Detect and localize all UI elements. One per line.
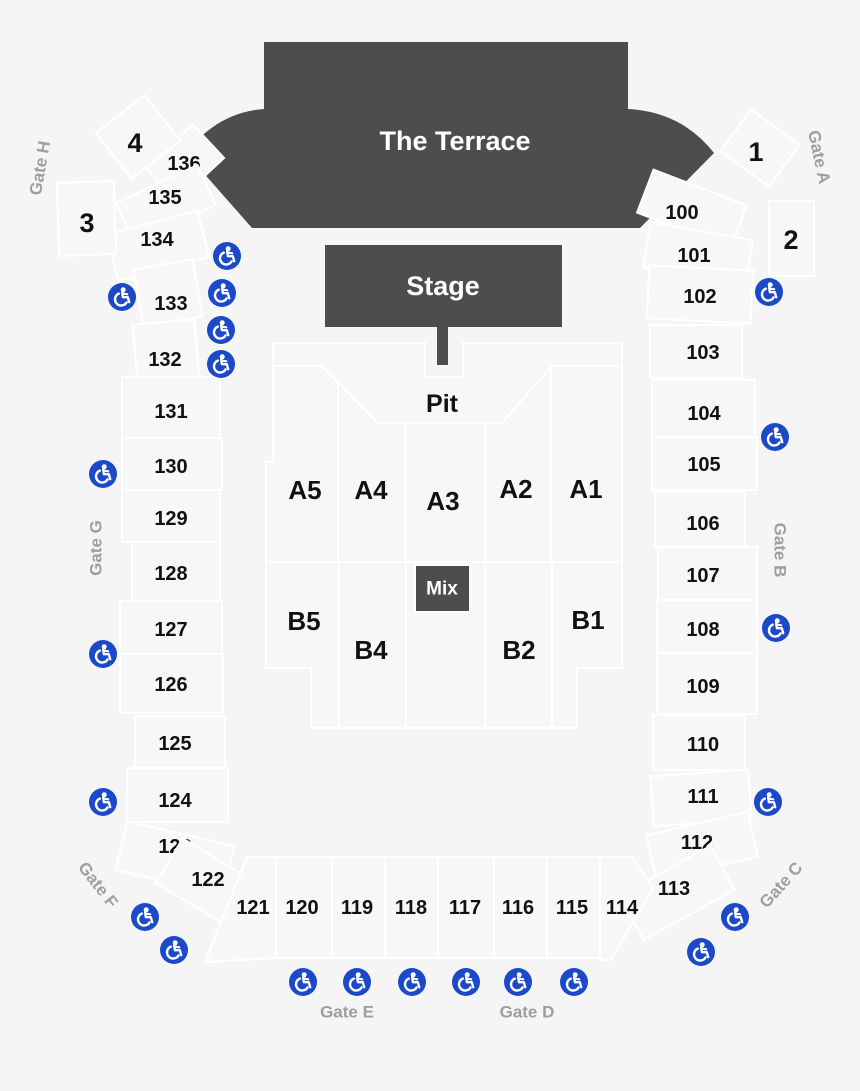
seating-map-canvas: The Terrace Stage Pit A5 A4 A3 A2 A1 B5 … [0, 0, 860, 1091]
section-102[interactable]: 102 [647, 265, 754, 323]
wheelchair-icon[interactable] [108, 283, 136, 311]
section-116-label: 116 [502, 897, 534, 919]
section-132[interactable]: 132 [133, 319, 200, 381]
section-125-label: 125 [158, 733, 191, 755]
section-b2-label[interactable]: B2 [502, 635, 535, 665]
section-a4-label[interactable]: A4 [354, 475, 388, 505]
section-117-label: 117 [449, 897, 481, 919]
section-110-label: 110 [687, 734, 719, 756]
section-118[interactable]: 118 [385, 857, 438, 958]
wheelchair-icon[interactable] [289, 968, 317, 996]
wheelchair-icon[interactable] [398, 968, 426, 996]
section-134-label: 134 [140, 229, 174, 251]
section-103-label: 103 [686, 342, 719, 364]
section-126[interactable]: 126 [120, 654, 223, 713]
wheelchair-icon[interactable] [755, 278, 783, 306]
section-115-label: 115 [556, 897, 588, 919]
section-110[interactable]: 110 [653, 715, 745, 770]
section-114-label: 114 [606, 897, 639, 919]
section-box-3-label: 3 [79, 208, 94, 238]
section-box-2-label: 2 [783, 225, 798, 255]
mix-booth-label: Mix [426, 579, 458, 600]
wheelchair-icon[interactable] [89, 640, 117, 668]
gate-g-label: Gate G [87, 520, 106, 576]
section-111-label: 111 [687, 786, 718, 808]
mix-booth: Mix [415, 565, 470, 612]
section-102-label: 102 [683, 286, 716, 308]
floor-area: Pit A5 A4 A3 A2 A1 B5 B4 B2 B1 [266, 343, 622, 728]
section-119-label: 119 [341, 897, 373, 919]
section-119[interactable]: 119 [332, 857, 385, 958]
stage-runway-shape [437, 327, 448, 365]
section-117[interactable]: 117 [438, 857, 494, 958]
section-104[interactable]: 104 [652, 380, 755, 437]
section-box-3[interactable]: 3 [57, 181, 117, 256]
section-105-label: 105 [687, 454, 720, 476]
wheelchair-icon[interactable] [131, 903, 159, 931]
section-128-label: 128 [154, 563, 187, 585]
section-101-label: 101 [677, 245, 710, 267]
section-a1-label[interactable]: A1 [569, 474, 602, 504]
wheelchair-icon[interactable] [207, 350, 235, 378]
wheelchair-icon[interactable] [754, 788, 782, 816]
wheelchair-icon[interactable] [343, 968, 371, 996]
wheelchair-icon[interactable] [213, 242, 241, 270]
wheelchair-icon[interactable] [721, 903, 749, 931]
section-b5-label[interactable]: B5 [287, 606, 320, 636]
section-pit-label[interactable]: Pit [426, 390, 459, 418]
wheelchair-icon[interactable] [687, 938, 715, 966]
section-107-label: 107 [686, 565, 719, 587]
section-115[interactable]: 115 [547, 857, 600, 958]
section-a5-label[interactable]: A5 [288, 475, 321, 505]
section-127-label: 127 [154, 619, 187, 641]
wheelchair-icon[interactable] [89, 788, 117, 816]
wheelchair-icon[interactable] [560, 968, 588, 996]
section-133-label: 133 [154, 293, 187, 315]
section-the-terrace-label: The Terrace [379, 126, 530, 156]
section-box-1-label: 1 [748, 137, 763, 167]
section-129[interactable]: 129 [122, 490, 220, 542]
section-107[interactable]: 107 [658, 547, 757, 600]
section-131[interactable]: 131 [122, 377, 220, 438]
section-b1-label[interactable]: B1 [571, 605, 604, 635]
seating-map: The Terrace Stage Pit A5 A4 A3 A2 A1 B5 … [0, 0, 860, 1091]
section-b4-label[interactable]: B4 [354, 635, 388, 665]
section-121-label: 121 [236, 897, 269, 919]
section-100-label: 100 [665, 202, 698, 224]
section-106[interactable]: 106 [655, 492, 745, 547]
section-box-4-label: 4 [127, 128, 142, 158]
wheelchair-icon[interactable] [452, 968, 480, 996]
section-104-label: 104 [687, 403, 721, 425]
section-113-label: 113 [658, 878, 690, 900]
wheelchair-icon[interactable] [504, 968, 532, 996]
section-126-label: 126 [154, 674, 187, 696]
section-103[interactable]: 103 [650, 325, 742, 378]
gate-e-label: Gate E [320, 1003, 374, 1022]
section-130-label: 130 [154, 456, 187, 478]
section-108[interactable]: 108 [657, 600, 757, 653]
gate-d-label: Gate D [500, 1003, 555, 1022]
gate-b-label: Gate B [771, 523, 790, 578]
wheelchair-icon[interactable] [208, 279, 236, 307]
section-135-label: 135 [148, 187, 181, 209]
wheelchair-icon[interactable] [160, 936, 188, 964]
section-133[interactable]: 133 [133, 259, 202, 327]
section-124-label: 124 [158, 790, 192, 812]
wheelchair-icon[interactable] [207, 316, 235, 344]
wheelchair-icon[interactable] [89, 460, 117, 488]
wheelchair-icon[interactable] [761, 423, 789, 451]
section-118-label: 118 [395, 897, 427, 919]
section-116[interactable]: 116 [494, 857, 547, 958]
section-125[interactable]: 125 [135, 716, 225, 768]
section-105[interactable]: 105 [652, 437, 757, 490]
section-106-label: 106 [686, 513, 719, 535]
section-130[interactable]: 130 [122, 438, 222, 490]
section-122-label: 122 [191, 869, 224, 891]
section-108-label: 108 [686, 619, 719, 641]
section-129-label: 129 [154, 508, 187, 530]
section-128[interactable]: 128 [132, 542, 220, 601]
section-a2-label[interactable]: A2 [499, 474, 532, 504]
section-a3-label[interactable]: A3 [426, 486, 459, 516]
stage-label: Stage [406, 271, 480, 301]
section-124[interactable]: 124 [127, 768, 228, 822]
section-132-label: 132 [148, 349, 181, 371]
wheelchair-icon[interactable] [762, 614, 790, 642]
section-120[interactable]: 120 [276, 857, 332, 958]
bottom-sections: 121 120 119 118 117 116 115 114 [205, 857, 653, 962]
section-box-2[interactable]: 2 [769, 201, 814, 276]
section-109[interactable]: 109 [657, 653, 757, 714]
section-131-label: 131 [154, 401, 187, 423]
section-120-label: 120 [285, 897, 318, 919]
section-127[interactable]: 127 [120, 601, 222, 654]
section-109-label: 109 [686, 676, 719, 698]
